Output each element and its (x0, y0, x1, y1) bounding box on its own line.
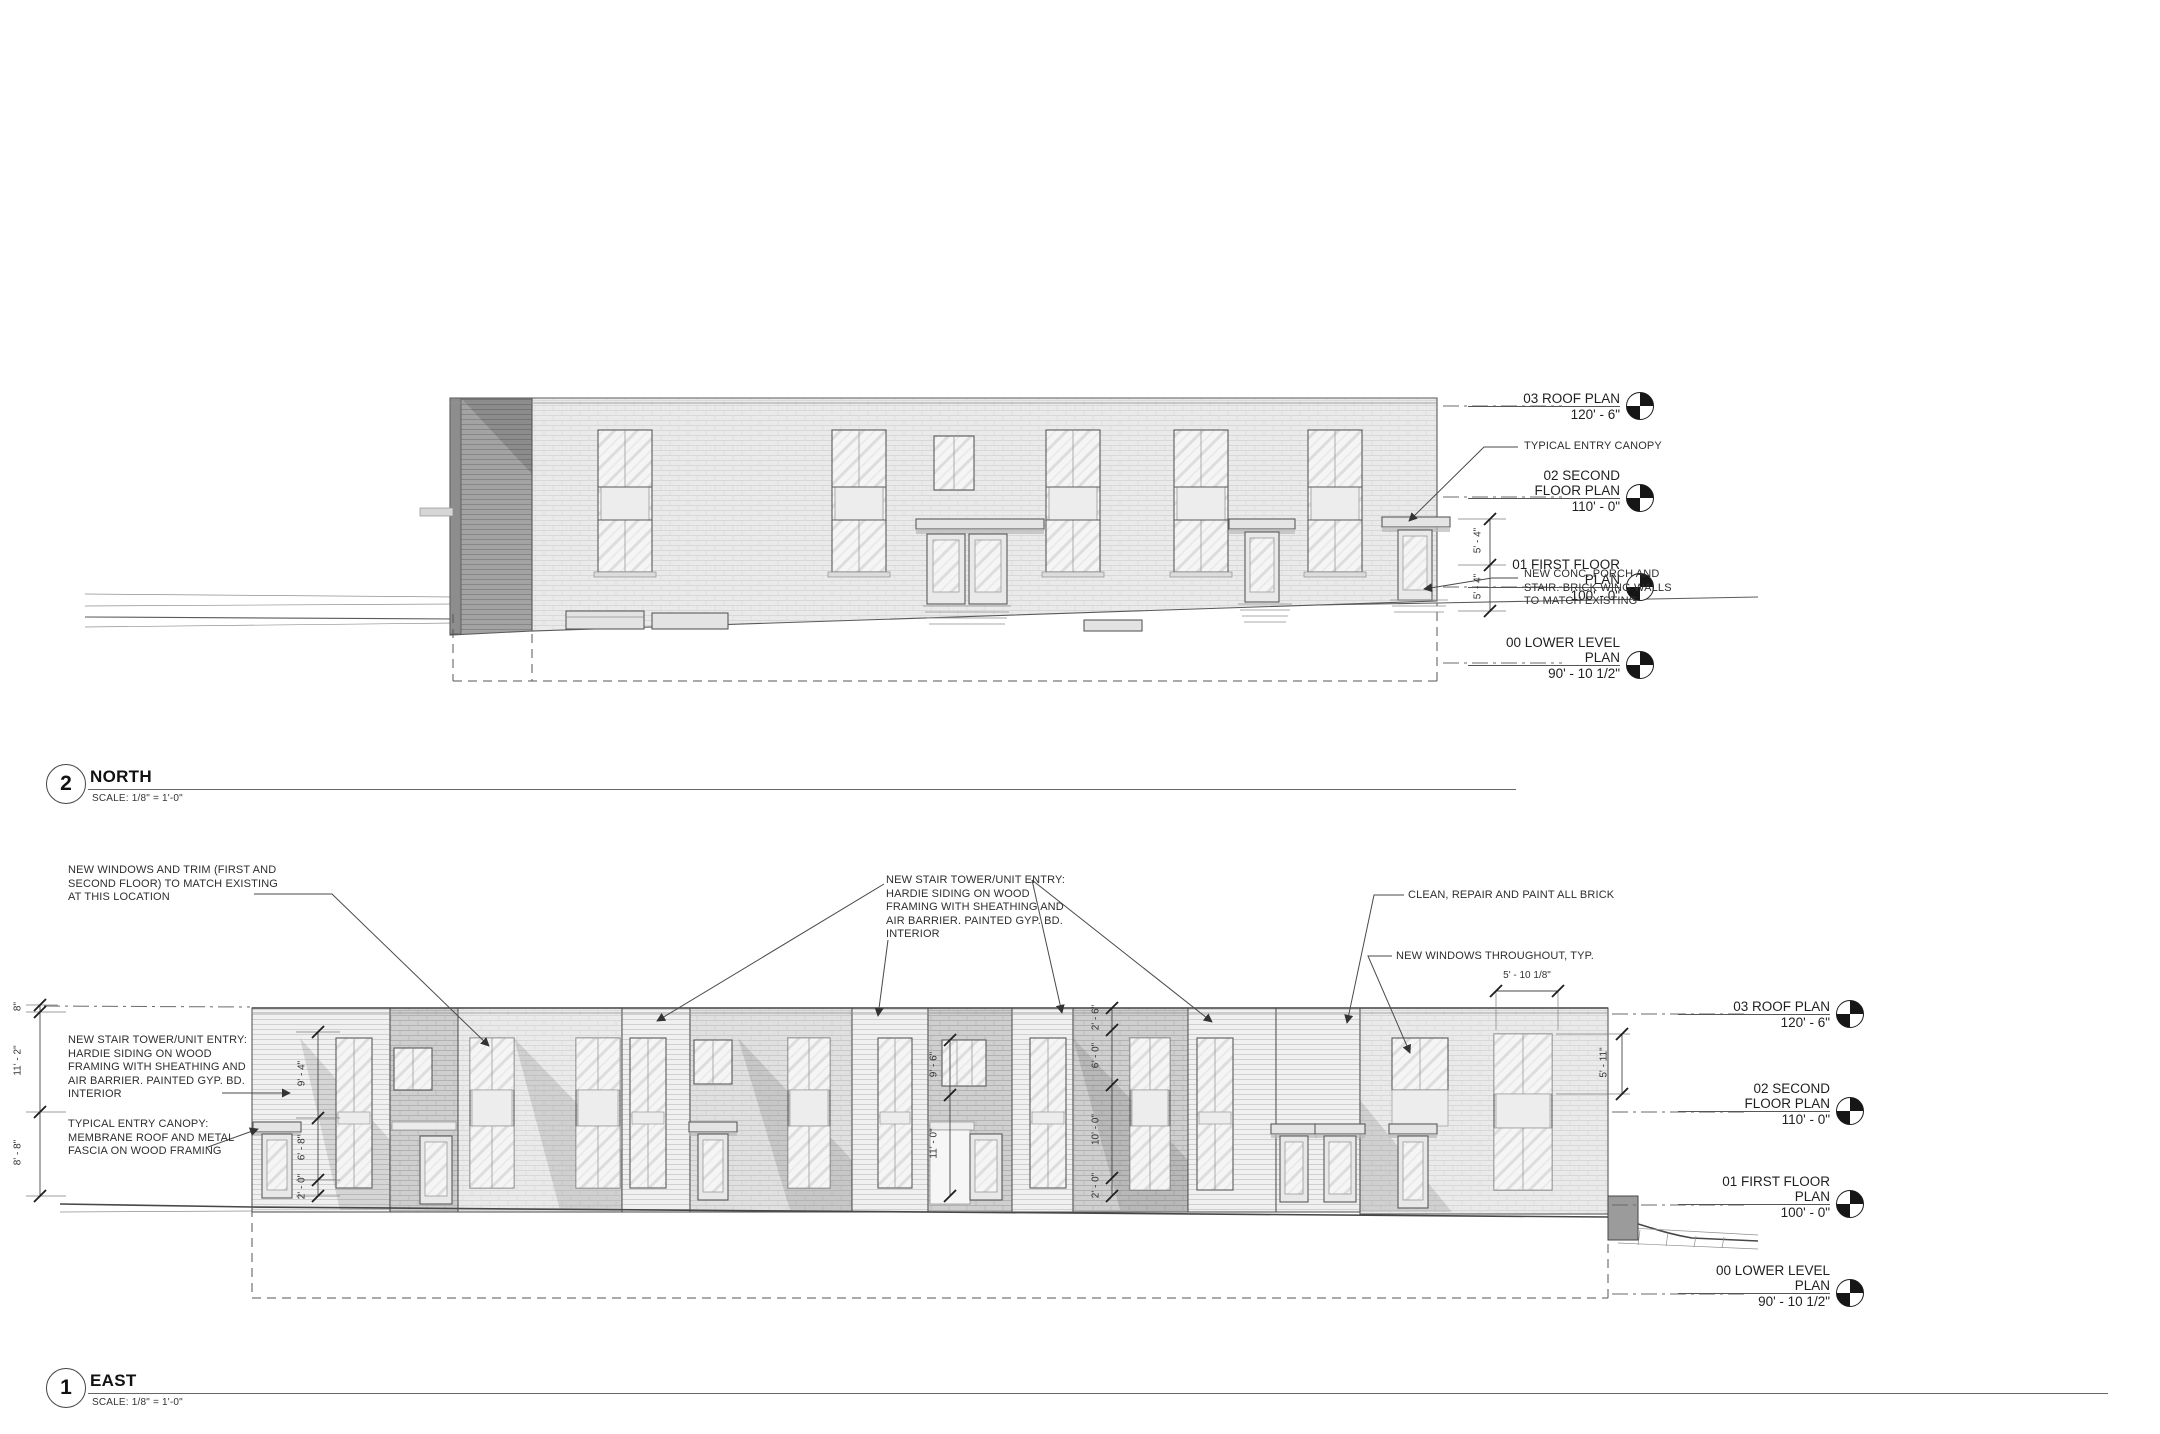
view-title-east: EAST (90, 1371, 137, 1391)
level-head-icon (1836, 1000, 1864, 1028)
window-tall-narrow (1030, 1038, 1066, 1188)
entry-door (970, 1134, 1002, 1200)
window-tall-narrow (878, 1038, 912, 1188)
window-small (942, 1040, 986, 1086)
level-elevation: 110' - 0" (1468, 498, 1620, 514)
window-tall (1304, 430, 1366, 577)
note-new-windows-trim: NEW WINDOWS AND TRIM (FIRST AND SECOND F… (68, 864, 278, 905)
level-head-icon (1626, 484, 1654, 512)
level-label-second: 02 SECONDFLOOR PLAN110' - 0" (1468, 468, 1654, 514)
dim-tower-9-4: 9' - 4" (297, 1039, 308, 1109)
north-stair-tower (420, 398, 532, 635)
window-tall (594, 430, 656, 577)
level-name: 03 ROOF PLAN (1468, 391, 1620, 406)
retaining-wall (1608, 1196, 1638, 1240)
dim-mid-11-0: 11' - 0" (929, 1109, 940, 1179)
level-head-icon (1626, 392, 1654, 420)
view-scale-east: SCALE: 1/8" = 1'-0" (92, 1397, 183, 1408)
level-head-icon (1836, 1279, 1864, 1307)
level-elevation: 90' - 10 1/2" (1468, 665, 1620, 681)
note-conc-porch: NEW CONC. PORCH AND STAIR. BRICK WING WA… (1524, 568, 1672, 609)
dim-window-height: 5' - 11" (1599, 1028, 1610, 1098)
window-two-story (470, 1038, 514, 1188)
level-label-roof: 03 ROOF PLAN120' - 6" (1678, 999, 1864, 1030)
note-stair-tower-left: NEW STAIR TOWER/UNIT ENTRY: HARDIE SIDIN… (68, 1034, 247, 1102)
view-number-north: 2 (46, 764, 86, 804)
level-name: PLAN (1468, 650, 1620, 665)
east-lower-level-outline (252, 1208, 1608, 1298)
level-name: 03 ROOF PLAN (1678, 999, 1830, 1014)
level-name: FLOOR PLAN (1678, 1096, 1830, 1111)
dim-porch-lower: 5' - 4" (1473, 552, 1484, 622)
note-new-windows: NEW WINDOWS THROUGHOUT, TYP. (1396, 950, 1594, 964)
window-two-story-dimensioned (1494, 1034, 1552, 1190)
window-tall-narrow (336, 1038, 372, 1188)
level-head-icon (1836, 1190, 1864, 1218)
level-name: 02 SECOND (1468, 468, 1620, 483)
level-name: 02 SECOND (1678, 1081, 1830, 1096)
window-upper-sash (1392, 1038, 1448, 1126)
east-elevation-drawing (26, 880, 1758, 1298)
dim-mid-9-6: 9' - 6" (929, 1030, 940, 1100)
note-clean-brick: CLEAN, REPAIR AND PAINT ALL BRICK (1408, 889, 1614, 903)
level-head-icon (1626, 651, 1654, 679)
level-elevation: 110' - 0" (1678, 1111, 1830, 1127)
level-label-roof: 03 ROOF PLAN120' - 6" (1468, 391, 1654, 422)
level-label-lower: 00 LOWER LEVELPLAN90' - 10 1/2" (1468, 635, 1654, 681)
window-two-story (788, 1038, 830, 1188)
dim-left-8-8: 8' - 8" (13, 1118, 24, 1188)
drawing-sheet: 03 ROOF PLAN120' - 6" 02 SECONDFLOOR PLA… (0, 0, 2160, 1434)
level-name: 00 LOWER LEVEL (1468, 635, 1620, 650)
view-scale-north: SCALE: 1/8" = 1'-0" (92, 793, 183, 804)
window-two-story (1130, 1038, 1170, 1190)
window-small (394, 1048, 432, 1090)
level-elevation: 120' - 6" (1468, 406, 1620, 422)
view-number-east: 1 (46, 1368, 86, 1408)
dim-tower-2-0: 2' - 0" (297, 1152, 308, 1222)
window-small (934, 436, 974, 490)
level-name: 00 LOWER LEVEL (1678, 1263, 1830, 1278)
level-elevation: 100' - 0" (1678, 1204, 1830, 1220)
level-label-first: 01 FIRST FLOORPLAN100' - 0" (1678, 1174, 1864, 1220)
level-name: PLAN (1678, 1278, 1830, 1293)
dim-midr-2-0: 2' - 0" (1091, 1151, 1102, 1221)
note-stair-tower-mid: NEW STAIR TOWER/UNIT ENTRY: HARDIE SIDIN… (886, 874, 1065, 942)
east-left-dimension-chain (26, 999, 66, 1202)
view-title-underline (88, 789, 1516, 790)
level-name: 01 FIRST FLOOR (1678, 1174, 1830, 1189)
level-elevation: 120' - 6" (1678, 1014, 1830, 1030)
window-tall (828, 430, 890, 577)
level-label-lower: 00 LOWER LEVELPLAN90' - 10 1/2" (1678, 1263, 1864, 1309)
window-tall-narrow (630, 1038, 666, 1188)
note-entry-canopy-left: TYPICAL ENTRY CANOPY: MEMBRANE ROOF AND … (68, 1118, 234, 1159)
level-name: PLAN (1678, 1189, 1830, 1204)
level-elevation: 90' - 10 1/2" (1678, 1293, 1830, 1309)
note-typical-entry-canopy: TYPICAL ENTRY CANOPY (1524, 440, 1662, 454)
window-tall-narrow (1197, 1038, 1233, 1190)
level-label-second: 02 SECONDFLOOR PLAN110' - 0" (1678, 1081, 1864, 1127)
dim-midr-6-0: 6' - 0" (1091, 1021, 1102, 1091)
window-tall (1042, 430, 1104, 577)
dim-window-width: 5' - 10 1/8" (1492, 970, 1562, 981)
window-small (694, 1040, 732, 1084)
level-name: FLOOR PLAN (1468, 483, 1620, 498)
entry-door (420, 1136, 452, 1204)
dim-left-11-2: 11' - 2" (13, 1026, 24, 1096)
window-tall (1170, 430, 1232, 577)
view-title-underline (88, 1393, 2108, 1394)
view-title-north: NORTH (90, 767, 152, 787)
window-two-story (576, 1038, 620, 1188)
level-head-icon (1836, 1097, 1864, 1125)
